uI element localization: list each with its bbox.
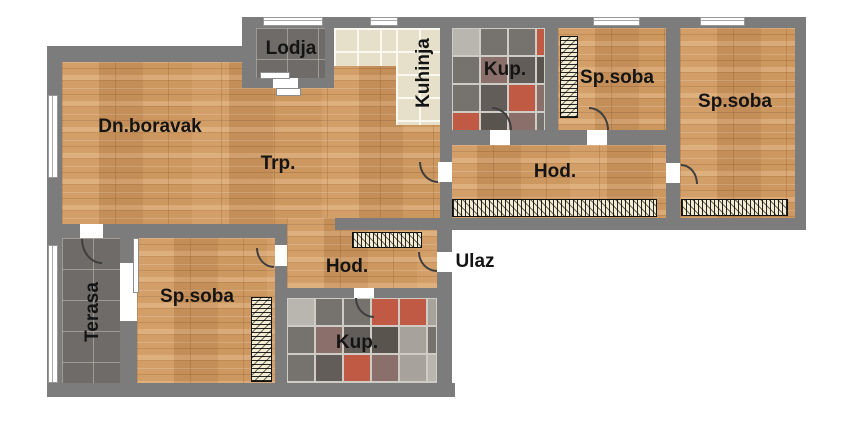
mosaic-tile [453, 113, 479, 131]
loggia-sill [260, 72, 290, 79]
mosaic-tile [481, 29, 507, 55]
mosaic-tile [316, 355, 342, 381]
mosaic-tile [316, 299, 342, 325]
mosaic-tile [509, 85, 535, 111]
entrance-door-gap [437, 252, 452, 272]
wall-outer-right [795, 17, 806, 230]
mosaic-tile [537, 57, 544, 83]
mosaic-tile [400, 355, 426, 381]
mosaic-tile [509, 29, 535, 55]
mosaic-tile [288, 355, 314, 381]
bedroom-top-wardrobe [560, 36, 578, 118]
bedroom-bottom-label: Sp.soba [160, 286, 234, 308]
wall-kitchen-hall-divider [440, 28, 452, 218]
mosaic-tile [400, 327, 426, 353]
bedroom-top-label: Sp.soba [580, 67, 654, 89]
mosaic-tile [453, 57, 479, 83]
mosaic-tile [288, 299, 314, 325]
bath-bottom-door-gap [354, 288, 374, 298]
mosaic-tile [453, 85, 479, 111]
terrace-door-gap [80, 224, 103, 238]
mosaic-tile [537, 29, 544, 55]
bedroom-right-window [700, 17, 745, 26]
floor-plan: Dn.boravak Trp. Lodja Kuhinja Kup. Sp.so… [0, 0, 856, 447]
mosaic-tile [428, 299, 436, 325]
wall-rightwing-bottom [440, 218, 806, 230]
wall-outer-bottom [47, 383, 455, 397]
bedroom-right-wardrobe [681, 199, 788, 216]
loggia-door-threshold [276, 88, 301, 96]
bedroom-bottom-door-gap [275, 245, 287, 266]
bath-top-door-gap [490, 130, 510, 145]
wall-bedroomtop-bottom [440, 130, 666, 145]
mosaic-tile [344, 355, 370, 381]
hall-top-label: Hod. [534, 161, 576, 183]
bedroom-right-label: Sp.soba [698, 91, 772, 113]
bedroom-right-door-gap [666, 163, 680, 183]
bedroom-top-door-gap [587, 130, 607, 145]
wall-hallbottom-top [335, 218, 440, 230]
bath-top-label: Kup. [484, 59, 526, 81]
wall-bath-bedroom-divider [545, 17, 558, 145]
mosaic-tile [537, 113, 544, 131]
mosaic-tile [372, 355, 398, 381]
hall-bottom-label: Hod. [326, 256, 368, 278]
loggia-window [263, 17, 323, 26]
terrace-window [48, 245, 58, 383]
living-hall-door-gap [438, 162, 452, 182]
bedroom-top-window [593, 17, 640, 26]
bedroom-right-floor [680, 28, 795, 218]
entrance-label: Ulaz [455, 251, 494, 273]
terrace-label: Terasa [82, 282, 104, 342]
mosaic-tile [288, 327, 314, 353]
hall-top-wardrobe [452, 199, 657, 217]
mosaic-tile [428, 355, 436, 381]
mosaic-tile [400, 299, 426, 325]
loggia-door-gap [273, 78, 298, 88]
hall-bottom-wardrobe [352, 232, 422, 248]
mosaic-tile [372, 299, 398, 325]
living-room-label: Dn.boravak [98, 116, 201, 138]
loggia-label: Lodja [266, 38, 317, 60]
living-window [48, 95, 58, 178]
kitchen-window [370, 17, 398, 26]
mosaic-tile [428, 327, 436, 353]
mosaic-tile [509, 113, 535, 131]
kitchen-label: Kuhinja [413, 38, 435, 108]
mosaic-tile [537, 85, 544, 111]
mosaic-tile [453, 29, 479, 55]
wall-top-left [47, 46, 250, 62]
wall-bedroomright-left [666, 17, 680, 230]
dining-label: Trp. [261, 153, 296, 175]
terrace-bedroom-door-leaf [133, 238, 139, 293]
bedroom-bottom-wardrobe [251, 297, 272, 382]
bath-bottom-label: Kup. [336, 332, 378, 354]
